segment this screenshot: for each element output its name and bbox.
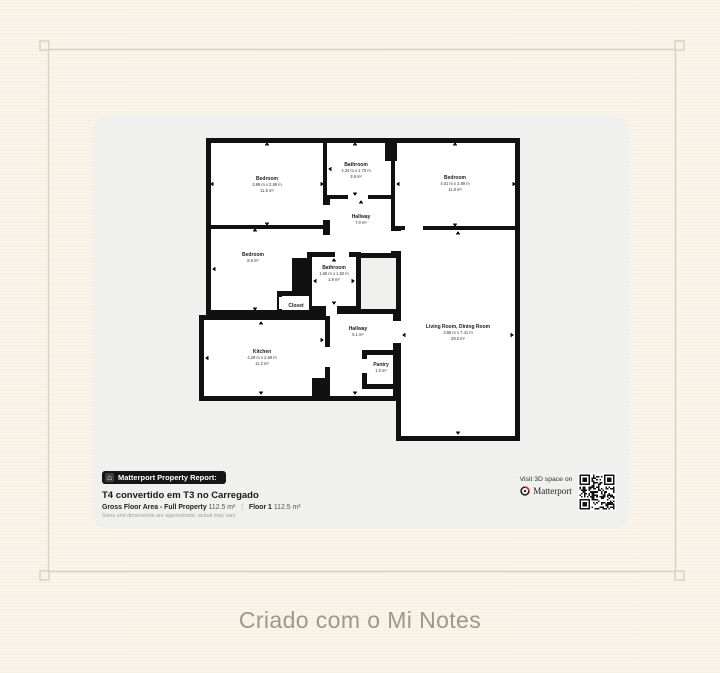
corner-ornament-tr bbox=[675, 41, 684, 50]
room-area: 3.9 m² bbox=[350, 174, 362, 179]
corner-ornament-br bbox=[675, 571, 684, 580]
corner-ornament-bl bbox=[40, 571, 49, 580]
room-dims: 3.96 m x 7.41 m bbox=[443, 330, 473, 335]
room-area: 5.1 m² bbox=[352, 332, 364, 337]
watermark: Criado com o Mi Notes bbox=[0, 607, 720, 634]
area-summary: Gross Floor Area - Full Property 112.5 m… bbox=[102, 504, 301, 511]
room-hallway-top bbox=[330, 199, 391, 253]
gross-area-label: Gross Floor Area - Full Property bbox=[102, 504, 207, 511]
room-area: 11.8 m² bbox=[448, 187, 462, 192]
room-area: 8.8 m² bbox=[247, 258, 259, 263]
room-dims: 2.34 m x 1.75 m bbox=[341, 168, 371, 173]
house-icon: ⌂ bbox=[105, 473, 114, 482]
report-info: ⌂ Matterport Property Report: T4 convert… bbox=[102, 467, 301, 519]
visit-3d-block: Visit 3D space on Matterport bbox=[505, 476, 587, 496]
badge-label: Matterport Property Report: bbox=[118, 473, 217, 482]
note-page: Bedroom 3.99 m x 2.86 m 11.5 m² Bathroom… bbox=[0, 0, 720, 673]
room-dims: 4.01 m x 2.89 m bbox=[440, 181, 470, 186]
gross-area-value: 112.5 m² bbox=[209, 504, 236, 511]
room-area: 11.5 m² bbox=[260, 188, 274, 193]
wall-notch-kitchen bbox=[312, 378, 327, 398]
room-name: Closet bbox=[288, 303, 304, 309]
separator: | bbox=[237, 504, 247, 511]
floorplan-drawing: Bedroom 3.99 m x 2.86 m 11.5 m² Bathroom… bbox=[195, 135, 525, 455]
floor-value: 112.5 m² bbox=[274, 504, 301, 511]
floor-label: Floor 1 bbox=[249, 504, 272, 511]
floorplan-card: Bedroom 3.99 m x 2.86 m 11.5 m² Bathroom… bbox=[93, 115, 629, 529]
room-area: 11.2 m² bbox=[255, 361, 269, 366]
room-area: 1.0 m² bbox=[375, 368, 387, 373]
wall-jog bbox=[292, 258, 308, 296]
report-badge: ⌂ Matterport Property Report: bbox=[102, 471, 226, 484]
qr-code bbox=[578, 473, 616, 511]
wall-notch-top bbox=[385, 138, 397, 161]
room-area: 29.3 m² bbox=[451, 336, 466, 341]
room-dims: 3.99 m x 2.86 m bbox=[252, 182, 282, 187]
corner-ornament-tl bbox=[40, 41, 49, 50]
disclaimer: Sizes and dimensions are approximate, ac… bbox=[102, 513, 301, 519]
room-dims: 4.29 m x 2.69 m bbox=[247, 355, 277, 360]
room-area: 7.0 m² bbox=[355, 220, 367, 225]
matterport-wordmark: Matterport bbox=[533, 486, 572, 496]
visit-3d-label: Visit 3D space on bbox=[505, 476, 587, 483]
report-title: T4 convertido em T3 no Carregado bbox=[102, 490, 301, 501]
matterport-logo-icon bbox=[520, 486, 530, 496]
room-area: 2.9 m² bbox=[328, 277, 340, 282]
room-dims: 1.66 m x 1.82 m bbox=[319, 271, 349, 276]
